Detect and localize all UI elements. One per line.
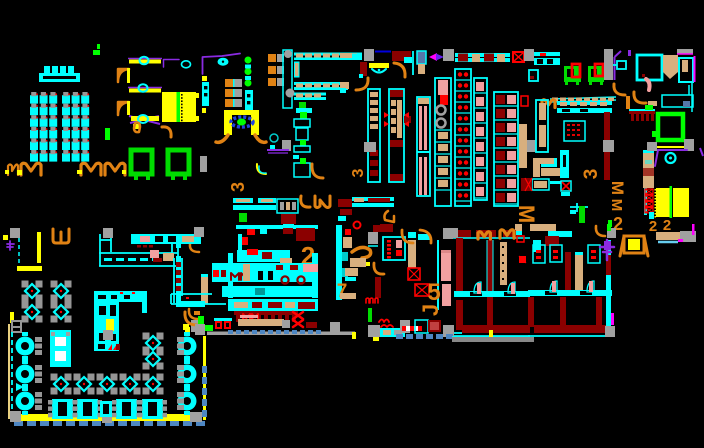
svg-text:M: M <box>608 181 627 195</box>
svg-text:M: M <box>608 199 625 212</box>
svg-text:2: 2 <box>649 218 657 235</box>
svg-text:2: 2 <box>663 217 671 234</box>
svg-text:J: J <box>418 304 443 316</box>
svg-text:3: 3 <box>228 182 248 192</box>
svg-text:M: M <box>514 205 539 223</box>
svg-text:3: 3 <box>350 168 367 177</box>
svg-text:3: 3 <box>581 169 602 180</box>
svg-text:5: 5 <box>427 279 440 306</box>
